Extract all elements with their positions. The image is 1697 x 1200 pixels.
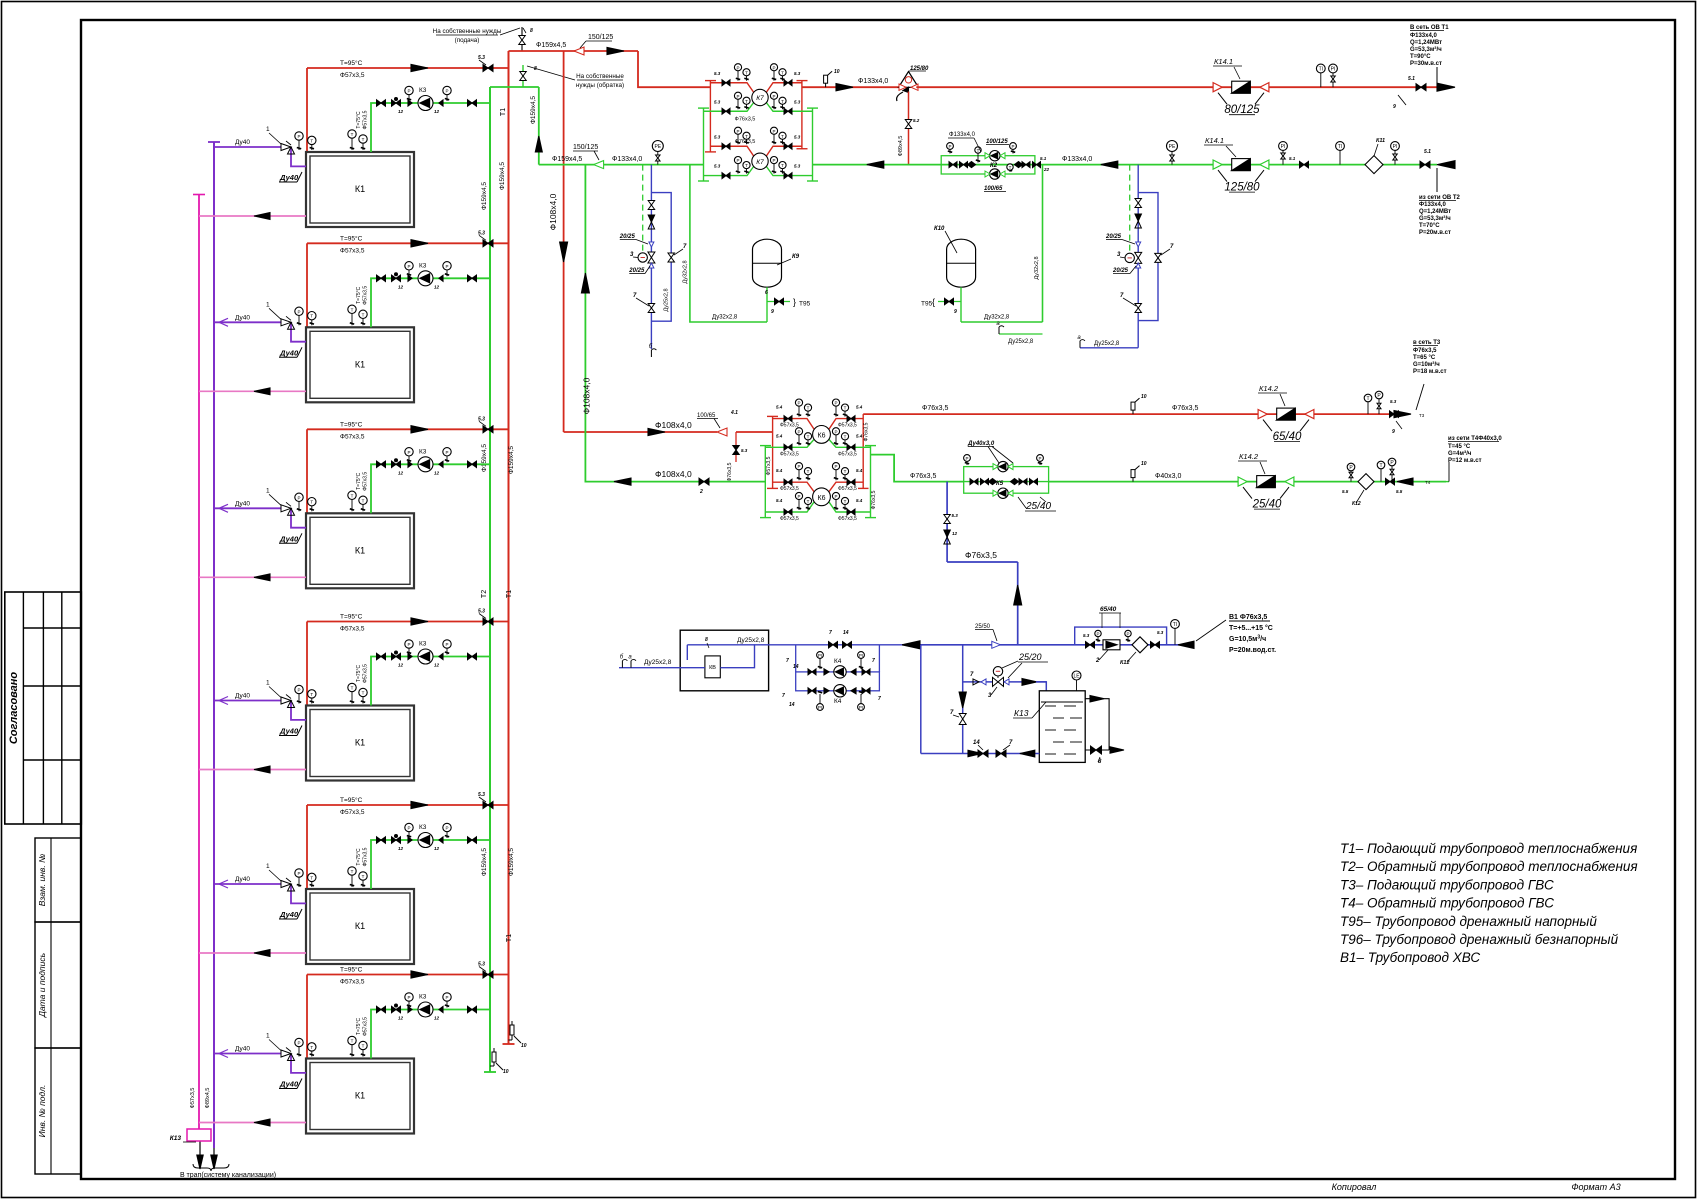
- svg-text:2: 2: [699, 489, 703, 495]
- svg-text:Т: Т: [362, 312, 365, 317]
- svg-text:12: 12: [398, 1016, 404, 1021]
- svg-text:5.1: 5.1: [1408, 76, 1415, 82]
- svg-text:КВ: КВ: [709, 665, 716, 671]
- svg-text:5.1: 5.1: [1424, 149, 1431, 155]
- svg-text:Р: Р: [834, 464, 837, 469]
- svg-text:К14.1: К14.1: [1205, 136, 1224, 145]
- svg-text:5.3: 5.3: [1083, 633, 1090, 638]
- svg-text:Т=75°С: Т=75°С: [356, 848, 362, 866]
- svg-text:Ф57х3,5: Ф57х3,5: [363, 472, 369, 491]
- svg-text:Ф159x4,5: Ф159x4,5: [536, 42, 566, 49]
- svg-text:К14.2: К14.2: [1259, 384, 1279, 393]
- svg-text:К1: К1: [355, 359, 365, 369]
- svg-text:Р=20м.вод.ст.: Р=20м.вод.ст.: [1229, 647, 1276, 654]
- svg-text:5.4: 5.4: [776, 433, 783, 438]
- svg-text:Ду32x2,8: Ду32x2,8: [712, 315, 738, 321]
- svg-text:(подача): (подача): [455, 37, 480, 44]
- svg-text:Ду40: Ду40: [279, 910, 299, 919]
- svg-text:Ф133х4,0: Ф133х4,0: [1410, 33, 1437, 39]
- svg-text:Т: Т: [844, 469, 847, 474]
- svg-text:Ф133x4,0: Ф133x4,0: [949, 132, 976, 138]
- svg-text:Т=75°С: Т=75°С: [356, 472, 362, 490]
- svg-text:РI: РI: [818, 653, 822, 658]
- svg-text:Т=75°С: Т=75°С: [356, 111, 362, 129]
- svg-text:Т4: Т4: [1425, 480, 1431, 485]
- svg-text:Ф133x4,0: Ф133x4,0: [612, 156, 642, 163]
- svg-text:Т: Т: [362, 498, 365, 503]
- svg-text:К1: К1: [355, 1091, 365, 1101]
- svg-text:Р: Р: [297, 871, 300, 876]
- svg-text:Ф57x3,5: Ф57x3,5: [780, 423, 799, 429]
- svg-text:К14.2: К14.2: [1239, 452, 1259, 461]
- svg-text:Р: Р: [797, 464, 800, 469]
- svg-text:Ду25x2,8: Ду25x2,8: [1008, 339, 1034, 345]
- svg-text:Т: Т: [362, 691, 365, 696]
- svg-text:Т96– Трубопровод дренажный без: Т96– Трубопровод дренажный безнапорный: [1340, 932, 1619, 947]
- svg-text:Р: Р: [407, 826, 410, 831]
- svg-text:РI: РI: [818, 705, 822, 710]
- svg-text:Ду40: Ду40: [279, 727, 299, 736]
- svg-text:Т=75°С: Т=75°С: [356, 665, 362, 683]
- svg-text:Ф159x4,5: Ф159x4,5: [481, 848, 488, 876]
- svg-text:1: 1: [266, 301, 270, 308]
- svg-text:Т: Т: [351, 869, 354, 874]
- svg-text:Р: Р: [445, 264, 448, 269]
- svg-text:Ф89x4,5: Ф89x4,5: [898, 136, 904, 157]
- svg-text:Т: Т: [745, 99, 748, 104]
- svg-text:Р: Р: [797, 401, 800, 406]
- svg-text:В1– Трубопровод ХВС: В1– Трубопровод ХВС: [1340, 950, 1480, 965]
- svg-text:Т: Т: [310, 138, 313, 143]
- svg-text:Ф76х3,5: Ф76х3,5: [1413, 348, 1437, 354]
- svg-text:Т: Т: [807, 434, 810, 439]
- svg-text:К3: К3: [419, 824, 427, 831]
- svg-text:Р: Р: [407, 89, 410, 94]
- svg-text:Копировал: Копировал: [1332, 1182, 1377, 1192]
- svg-text:Т=95°С: Т=95°С: [340, 613, 363, 621]
- svg-text:Согласовано: Согласовано: [8, 672, 20, 745]
- svg-text:Ф57x3,5: Ф57x3,5: [780, 486, 799, 492]
- svg-text:Р: Р: [1011, 144, 1014, 149]
- svg-text:5.3: 5.3: [714, 164, 721, 169]
- svg-text:Р: Р: [736, 158, 739, 163]
- svg-text:12: 12: [398, 284, 404, 289]
- svg-text:5.4: 5.4: [856, 468, 863, 473]
- svg-text:нужды (обратка): нужды (обратка): [576, 81, 624, 89]
- svg-text:5.1: 5.1: [1040, 156, 1047, 161]
- svg-text:Р: Р: [297, 688, 300, 693]
- svg-text:Т: Т: [781, 163, 784, 168]
- svg-text:Т: Т: [844, 434, 847, 439]
- svg-text:Р: Р: [736, 94, 739, 99]
- svg-text:Р: Р: [445, 89, 448, 94]
- svg-text:Р: Р: [797, 494, 800, 499]
- svg-text:14: 14: [793, 664, 799, 670]
- svg-text:Ду32x2,8: Ду32x2,8: [984, 315, 1010, 321]
- svg-text:Т=70°С: Т=70°С: [1419, 223, 1440, 229]
- svg-text:К3: К3: [419, 87, 427, 94]
- svg-text:Q=1,24МВт: Q=1,24МВт: [1419, 209, 1451, 215]
- svg-text:РI: РI: [1281, 144, 1286, 150]
- svg-text:Ф159x4,5: Ф159x4,5: [499, 162, 506, 190]
- svg-text:Ф57х3,5: Ф57х3,5: [363, 847, 369, 866]
- svg-text:1: 1: [266, 863, 270, 870]
- svg-text:5.5: 5.5: [1396, 489, 1403, 494]
- svg-text:Т: Т: [807, 469, 810, 474]
- svg-text:В1 Ф76x3,5: В1 Ф76x3,5: [1229, 614, 1267, 621]
- svg-text:12: 12: [398, 663, 404, 668]
- svg-text:Ф89x4,5: Ф89x4,5: [205, 1088, 211, 1109]
- svg-text:Ду25x2,8: Ду25x2,8: [1094, 341, 1120, 347]
- svg-text:Ф159x4,5: Ф159x4,5: [481, 182, 488, 210]
- svg-text:Ф57х3,5: Ф57х3,5: [340, 247, 365, 254]
- svg-text:Т=95°С: Т=95°С: [340, 966, 363, 974]
- svg-text:Т95– Трубопровод дренажный нап: Т95– Трубопровод дренажный напорный: [1340, 914, 1597, 929]
- svg-text:Т1– Подающий трубопровод тепло: Т1– Подающий трубопровод теплоснабжения: [1340, 841, 1637, 856]
- svg-text:5.4: 5.4: [776, 498, 783, 503]
- svg-text:Р: Р: [445, 826, 448, 831]
- svg-text:Ф57х3,5: Ф57х3,5: [363, 286, 369, 305]
- svg-text:Ф133х4,0: Ф133х4,0: [1419, 202, 1446, 208]
- svg-text:Дата и подпись: Дата и подпись: [37, 953, 47, 1018]
- svg-text:Р: Р: [1096, 632, 1099, 637]
- svg-text:Т=75°С: Т=75°С: [356, 1018, 362, 1036]
- svg-text:Р: Р: [948, 144, 951, 149]
- svg-text:Ф57x3,5: Ф57x3,5: [838, 451, 857, 457]
- svg-text:К7: К7: [756, 159, 764, 166]
- svg-text:Т3: Т3: [1419, 413, 1425, 418]
- svg-text:Т=95°С: Т=95°С: [340, 234, 363, 242]
- svg-text:Ф57х3,5: Ф57х3,5: [340, 626, 365, 633]
- svg-text:7: 7: [782, 693, 785, 699]
- svg-text:Ду32x2,8: Ду32x2,8: [1034, 256, 1040, 279]
- svg-text:Т: Т: [745, 70, 748, 75]
- svg-text:Т: Т: [351, 307, 354, 312]
- svg-text:Ф57х3,5: Ф57х3,5: [340, 72, 365, 79]
- svg-text:Ф108x4,0: Ф108x4,0: [655, 469, 692, 479]
- svg-text:Р: Р: [407, 450, 410, 455]
- svg-text:Ф76x3,5: Ф76x3,5: [735, 117, 756, 123]
- svg-text:5.4: 5.4: [856, 433, 863, 438]
- svg-text:К13: К13: [170, 1135, 182, 1142]
- svg-text:Р: Р: [297, 1041, 300, 1046]
- svg-text:Взам. инв. №: Взам. инв. №: [37, 854, 47, 907]
- svg-text:К7: К7: [756, 95, 764, 102]
- svg-text:Р=30м.в.ст: Р=30м.в.ст: [1410, 61, 1442, 67]
- svg-text:Ф159x4,5: Ф159x4,5: [508, 446, 515, 474]
- svg-text:Т: Т: [310, 875, 313, 880]
- svg-text:Ф57х3,5: Ф57х3,5: [340, 433, 365, 440]
- svg-text:Ду40: Ду40: [279, 1080, 299, 1089]
- svg-text:22: 22: [1043, 167, 1050, 172]
- svg-text:К3: К3: [419, 448, 427, 455]
- svg-text:Ду32x2,8: Ду32x2,8: [682, 260, 688, 283]
- svg-text:К11: К11: [1376, 138, 1385, 144]
- svg-text:Т95: Т95: [799, 301, 811, 308]
- svg-text:Т: Т: [310, 692, 313, 697]
- svg-text:Ф108x4,0: Ф108x4,0: [548, 193, 558, 230]
- svg-text:G=53,3м3/ч: G=53,3м3/ч: [1419, 214, 1451, 222]
- svg-text:Ду40: Ду40: [235, 500, 250, 507]
- svg-text:1: 1: [266, 680, 270, 687]
- svg-text:9: 9: [771, 309, 774, 315]
- svg-text:12: 12: [398, 470, 404, 475]
- svg-text:1: 1: [266, 1033, 270, 1040]
- svg-text:Р=18 м.в.ст: Р=18 м.в.ст: [1413, 369, 1447, 375]
- svg-text:Т: Т: [362, 1044, 365, 1049]
- svg-text:Ф57x3,5: Ф57x3,5: [838, 516, 857, 522]
- svg-text:Ф57х3,5: Ф57х3,5: [340, 809, 365, 816]
- svg-text:Р: Р: [407, 642, 410, 647]
- svg-text:Р: Р: [407, 264, 410, 269]
- svg-text:5.3: 5.3: [1157, 630, 1164, 635]
- svg-text:Ф159x4,5: Ф159x4,5: [481, 444, 488, 472]
- svg-text:Ф57x3,5: Ф57x3,5: [838, 486, 857, 492]
- svg-text:Т1: Т1: [506, 934, 513, 942]
- svg-text:Т2: Т2: [481, 590, 488, 598]
- svg-text:Ф40x3,0: Ф40x3,0: [1155, 473, 1181, 480]
- svg-text:65/40: 65/40: [1100, 606, 1117, 613]
- svg-text:5.1: 5.1: [1289, 156, 1296, 161]
- svg-text:150/125: 150/125: [573, 144, 598, 151]
- svg-text:Т2– Обратный трубопровод тепло: Т2– Обратный трубопровод теплоснабжения: [1340, 859, 1638, 874]
- svg-text:К1: К1: [355, 184, 365, 194]
- svg-text:Ф108x4,0: Ф108x4,0: [582, 377, 592, 414]
- svg-text:ТI: ТI: [1319, 67, 1323, 73]
- svg-text:10: 10: [503, 1069, 509, 1075]
- svg-text:К4: К4: [834, 698, 842, 705]
- svg-text:Инв. № подл.: Инв. № подл.: [37, 1085, 47, 1138]
- svg-text:Р: Р: [736, 129, 739, 134]
- svg-text:Р: Р: [407, 995, 410, 1000]
- svg-text:5.3: 5.3: [794, 134, 801, 139]
- svg-text:Р: Р: [297, 309, 300, 314]
- svg-text:5.3: 5.3: [714, 71, 721, 76]
- svg-text:Ф76x3,5: Ф76x3,5: [735, 139, 756, 145]
- svg-text:Ду40: Ду40: [279, 534, 299, 543]
- svg-text:9: 9: [1393, 104, 1396, 110]
- svg-text:Ду40: Ду40: [279, 173, 299, 182]
- svg-text:Т: Т: [1379, 463, 1382, 469]
- svg-text:Р: Р: [297, 495, 300, 500]
- svg-text:Т: Т: [351, 493, 354, 498]
- svg-text:Ф57x3,5: Ф57x3,5: [838, 423, 857, 429]
- svg-text:10: 10: [834, 69, 840, 75]
- svg-text:К4: К4: [834, 658, 842, 665]
- svg-text:6: 6: [765, 290, 768, 296]
- svg-text:К3: К3: [419, 641, 427, 648]
- svg-text:9: 9: [1392, 429, 1395, 435]
- svg-text:Т: Т: [351, 1039, 354, 1044]
- svg-text:В трап(систему канализации): В трап(систему канализации): [180, 1172, 276, 1179]
- svg-text:К1: К1: [355, 738, 365, 748]
- svg-text:Т: Т: [310, 500, 313, 505]
- svg-text:7: 7: [878, 696, 881, 702]
- svg-text:Ф76x3,5: Ф76x3,5: [727, 462, 733, 481]
- svg-text:Ду40: Ду40: [235, 139, 250, 146]
- svg-text:РЕ: РЕ: [654, 144, 661, 150]
- svg-text:Ф133x4,0: Ф133x4,0: [1062, 156, 1092, 163]
- svg-text:Р: Р: [772, 65, 775, 70]
- svg-text:LE: LE: [1073, 674, 1080, 680]
- svg-text:Т: Т: [1009, 165, 1012, 170]
- svg-text:8: 8: [530, 28, 533, 34]
- svg-text:Ф76x3,5: Ф76x3,5: [910, 473, 936, 480]
- svg-text:Ф76x3,5: Ф76x3,5: [965, 550, 997, 560]
- svg-text:Т: Т: [362, 137, 365, 142]
- svg-text:12: 12: [434, 109, 440, 114]
- svg-text:12: 12: [398, 109, 404, 114]
- svg-text:5.3: 5.3: [1390, 399, 1397, 404]
- svg-text:Т: Т: [310, 1045, 313, 1050]
- svg-text:Р: Р: [772, 94, 775, 99]
- svg-text:Р: Р: [965, 456, 968, 461]
- svg-text:Ф57х3,5: Ф57х3,5: [363, 1017, 369, 1036]
- svg-text:5.3: 5.3: [714, 134, 721, 139]
- svg-text:К6: К6: [818, 495, 826, 502]
- svg-text:Ф57x3,5: Ф57x3,5: [190, 1088, 196, 1109]
- svg-text:5.3: 5.3: [794, 71, 801, 76]
- svg-text:10: 10: [521, 1043, 527, 1049]
- svg-text:К10: К10: [934, 226, 945, 232]
- svg-text:12: 12: [952, 531, 958, 536]
- svg-text:Q=1,24МВт: Q=1,24МВт: [1410, 40, 1442, 46]
- svg-text:Р: Р: [797, 429, 800, 434]
- svg-text:G=53,3м3/ч: G=53,3м3/ч: [1410, 45, 1442, 53]
- svg-text:К3: К3: [419, 262, 427, 269]
- svg-text:ТI: ТI: [1338, 144, 1342, 150]
- svg-text:Т: Т: [844, 406, 847, 411]
- svg-text:G=4м3/ч: G=4м3/ч: [1448, 449, 1472, 457]
- svg-text:Ф76x3,5: Ф76x3,5: [864, 422, 870, 441]
- svg-text:Т=95°С: Т=95°С: [340, 796, 363, 804]
- svg-text:Р: Р: [1038, 456, 1041, 461]
- svg-text:К3: К3: [419, 994, 427, 1001]
- svg-text:Ду40: Ду40: [235, 876, 250, 883]
- svg-text:5.3: 5.3: [714, 99, 721, 104]
- svg-text:5.4: 5.4: [776, 405, 783, 410]
- svg-text:Ф57x3,5: Ф57x3,5: [766, 456, 772, 475]
- svg-text:5.5: 5.5: [1342, 489, 1349, 494]
- svg-text:Ф133x4,0: Ф133x4,0: [858, 78, 888, 85]
- svg-text:На собственные нужды: На собственные нужды: [433, 27, 502, 35]
- svg-text:РI: РI: [1393, 144, 1398, 150]
- svg-text:Р: Р: [772, 158, 775, 163]
- svg-text:9: 9: [954, 309, 957, 315]
- svg-text:25/40: 25/40: [1025, 501, 1051, 512]
- svg-text:7: 7: [786, 658, 789, 664]
- svg-text:К6: К6: [818, 432, 826, 439]
- svg-text:Т1: Т1: [500, 108, 507, 116]
- svg-text:5.2: 5.2: [913, 118, 920, 123]
- svg-text:Р: Р: [445, 995, 448, 1000]
- svg-text:Т: Т: [1366, 396, 1369, 402]
- svg-text:G=10м3/ч: G=10м3/ч: [1413, 360, 1440, 368]
- svg-text:Т4– Обратный трубопровод ГВС: Т4– Обратный трубопровод ГВС: [1340, 896, 1554, 911]
- svg-text:Т: Т: [807, 406, 810, 411]
- svg-text:G=10,5м3/ч: G=10,5м3/ч: [1229, 635, 1266, 644]
- svg-text:Ф57х3,5: Ф57х3,5: [363, 110, 369, 129]
- svg-text:Р=20м.в.ст: Р=20м.в.ст: [1419, 230, 1451, 236]
- svg-text:Т=45 °С: Т=45 °С: [1448, 444, 1471, 450]
- svg-text:К9: К9: [792, 254, 800, 260]
- svg-text:14: 14: [843, 630, 849, 636]
- svg-text:Ду40: Ду40: [235, 1046, 250, 1053]
- svg-text:Т: Т: [781, 134, 784, 139]
- svg-text:Р: Р: [834, 429, 837, 434]
- svg-text:Р: Р: [772, 129, 775, 134]
- svg-text:Т=+5...+15 °С: Т=+5...+15 °С: [1229, 624, 1273, 632]
- svg-text:14: 14: [789, 702, 795, 708]
- svg-text:2: 2: [1095, 658, 1100, 664]
- svg-text:Ф108x4,0: Ф108x4,0: [655, 420, 692, 430]
- svg-text:На собственные: На собственные: [576, 72, 624, 80]
- svg-text:12: 12: [434, 284, 440, 289]
- svg-text:Р: Р: [834, 401, 837, 406]
- svg-text:Т: Т: [745, 134, 748, 139]
- svg-text:Ф159x4,5: Ф159x4,5: [530, 96, 537, 124]
- svg-text:К2: К2: [990, 163, 998, 169]
- svg-text:Ф57х3,5: Ф57х3,5: [363, 664, 369, 683]
- svg-text:Т: Т: [781, 99, 784, 104]
- svg-text:К1: К1: [355, 921, 365, 931]
- svg-text:10: 10: [1141, 461, 1147, 467]
- svg-text:25/20: 25/20: [1018, 652, 1042, 662]
- svg-text:Ф159x4,5: Ф159x4,5: [552, 156, 582, 163]
- svg-text:{: {: [932, 297, 935, 307]
- svg-text:Ф159x4,5: Ф159x4,5: [508, 848, 515, 876]
- svg-text:Ф57x3,5: Ф57x3,5: [780, 451, 799, 457]
- svg-text:Ду25x2,8: Ду25x2,8: [737, 637, 765, 644]
- svg-text:Ф76x3,5: Ф76x3,5: [922, 405, 948, 412]
- svg-text:12: 12: [398, 846, 404, 851]
- svg-text:Р: Р: [834, 494, 837, 499]
- svg-text:Ду40: Ду40: [235, 693, 250, 700]
- svg-text:Т: Т: [362, 874, 365, 879]
- svg-text:Т3– Подающий трубопровод ГВС: Т3– Подающий трубопровод ГВС: [1340, 877, 1554, 892]
- svg-text:5.3: 5.3: [794, 99, 801, 104]
- svg-text:14: 14: [973, 740, 980, 746]
- svg-text:Ду25x2,8: Ду25x2,8: [644, 659, 672, 666]
- svg-text:4.1: 4.1: [730, 410, 738, 416]
- svg-text:10: 10: [1141, 394, 1147, 400]
- svg-text:Ф57x3,5: Ф57x3,5: [780, 516, 799, 522]
- svg-text:РЕ: РЕ: [1169, 144, 1176, 150]
- svg-text:5.3: 5.3: [794, 164, 801, 169]
- svg-text:Т: Т: [781, 70, 784, 75]
- svg-text:Р: Р: [1126, 632, 1129, 637]
- svg-text:7: 7: [829, 630, 832, 636]
- svg-text:РI: РI: [1331, 67, 1336, 73]
- svg-text:12: 12: [434, 1016, 440, 1021]
- svg-text:К5: К5: [996, 481, 1004, 487]
- svg-text:Р=12 м.в.ст: Р=12 м.в.ст: [1448, 458, 1482, 464]
- svg-text:8: 8: [705, 637, 708, 643]
- svg-text:Ду25x2,8: Ду25x2,8: [664, 288, 670, 311]
- svg-text:5.4: 5.4: [856, 498, 863, 503]
- svg-text:5.3: 5.3: [952, 513, 959, 518]
- svg-text:Т: Т: [745, 163, 748, 168]
- svg-text:РI: РI: [859, 653, 863, 658]
- svg-text:Р: Р: [445, 450, 448, 455]
- svg-text:РI: РI: [859, 705, 863, 710]
- svg-text:Формат А3: Формат А3: [1571, 1182, 1620, 1192]
- svg-text:5.3: 5.3: [741, 448, 748, 453]
- svg-text:ТI: ТI: [1173, 622, 1177, 628]
- svg-text:Т=95°С: Т=95°С: [340, 420, 363, 428]
- svg-text:Т: Т: [310, 314, 313, 319]
- svg-text:Ду40: Ду40: [235, 314, 250, 321]
